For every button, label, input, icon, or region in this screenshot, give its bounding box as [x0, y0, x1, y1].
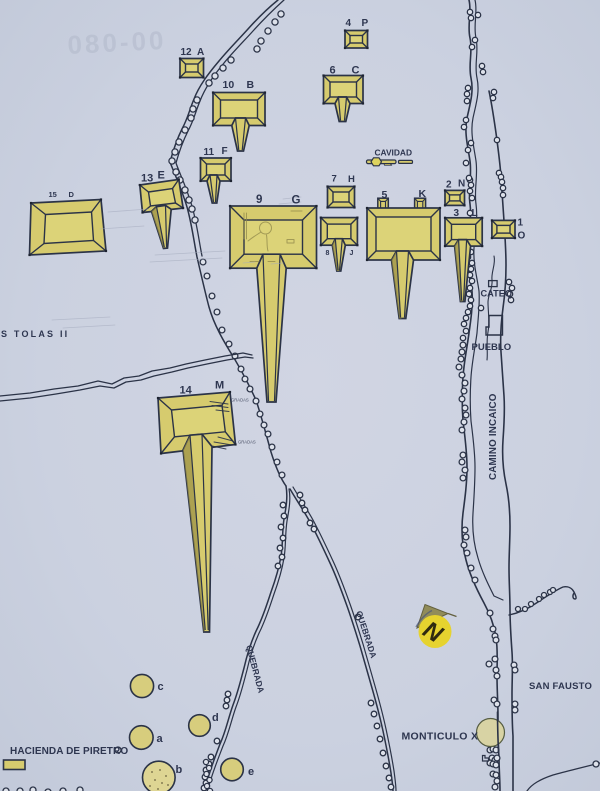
svg-text:8: 8 [326, 250, 330, 257]
svg-text:11: 11 [204, 147, 215, 158]
svg-text:CAMINO INCAICO: CAMINO INCAICO [488, 393, 499, 480]
svg-text:9: 9 [256, 194, 262, 206]
svg-text:K: K [419, 188, 427, 200]
svg-text:GRADAS: GRADAS [238, 440, 256, 445]
svg-text:PUEBLO: PUEBLO [472, 342, 512, 353]
svg-text:G: G [292, 194, 301, 206]
svg-text:15: 15 [49, 190, 57, 199]
svg-text:e: e [248, 766, 254, 778]
svg-text:J: J [350, 250, 354, 257]
svg-text:14: 14 [180, 385, 193, 397]
svg-text:4: 4 [346, 18, 352, 29]
svg-text:6: 6 [330, 64, 336, 76]
svg-text:MONTICULO X: MONTICULO X [402, 731, 479, 743]
svg-text:12: 12 [181, 47, 193, 58]
svg-text:E: E [158, 170, 165, 182]
svg-text:5: 5 [382, 189, 388, 201]
svg-text:GRADAS: GRADAS [231, 398, 249, 403]
svg-text:M: M [215, 380, 224, 392]
svg-text:P: P [362, 18, 369, 29]
svg-text:O: O [518, 231, 526, 242]
svg-text:C: C [352, 64, 360, 76]
svg-text:F: F [222, 146, 228, 157]
svg-text:L: L [472, 208, 478, 219]
svg-text:d: d [212, 712, 219, 724]
svg-text:c: c [158, 681, 164, 693]
svg-text:1: 1 [518, 218, 524, 229]
svg-text:a: a [157, 733, 164, 745]
svg-text:HACIENDA DE PIRETRO: HACIENDA DE PIRETRO [10, 746, 128, 757]
svg-text:CATEQ: CATEQ [481, 289, 512, 299]
svg-text:A: A [197, 47, 204, 58]
svg-text:D: D [69, 190, 75, 199]
svg-text:080-00: 080-00 [67, 25, 167, 60]
svg-text:b: b [176, 764, 183, 776]
svg-text:CAVIDAD: CAVIDAD [375, 148, 413, 158]
svg-text:3: 3 [454, 208, 460, 219]
svg-text:10: 10 [223, 79, 235, 91]
svg-text:2: 2 [446, 180, 452, 191]
svg-text:N: N [458, 179, 465, 190]
svg-text:7: 7 [332, 174, 337, 185]
svg-text:H: H [348, 174, 355, 185]
svg-text:SAN FAUSTO: SAN FAUSTO [529, 681, 592, 692]
svg-text:B: B [247, 79, 255, 91]
svg-text:S TOLAS II: S TOLAS II [1, 329, 69, 339]
svg-text:13: 13 [141, 173, 153, 185]
